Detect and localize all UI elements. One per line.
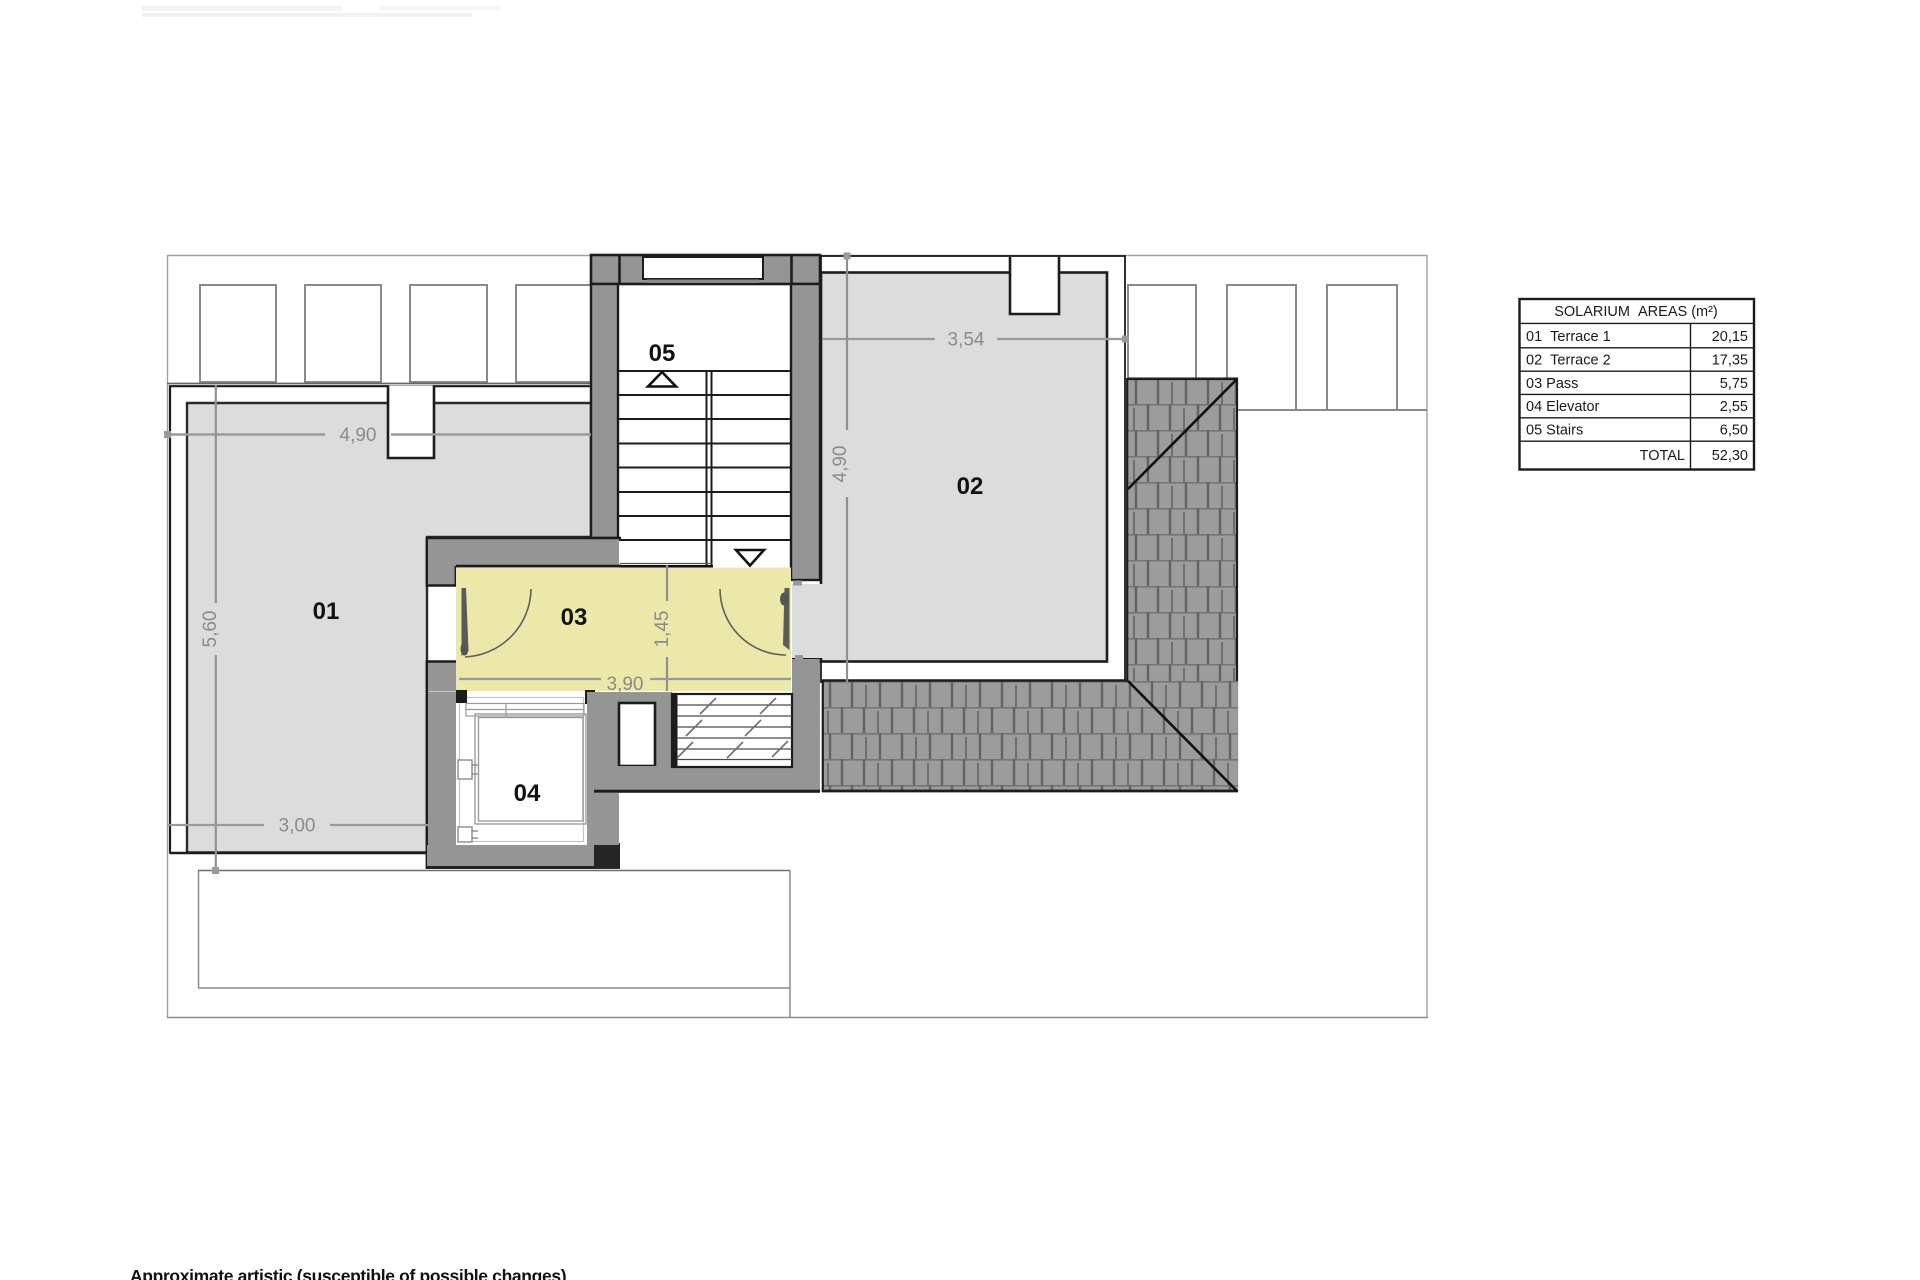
svg-text:3,90: 3,90 bbox=[607, 674, 644, 695]
svg-text:5,75: 5,75 bbox=[1720, 376, 1748, 392]
svg-text:04: 04 bbox=[514, 780, 541, 807]
svg-text:05: 05 bbox=[649, 340, 676, 367]
svg-text:1,45: 1,45 bbox=[652, 611, 673, 648]
svg-text:02: 02 bbox=[957, 473, 984, 500]
svg-text:03: 03 bbox=[561, 604, 588, 631]
svg-text:05 Stairs: 05 Stairs bbox=[1526, 423, 1583, 439]
svg-text:3,00: 3,00 bbox=[279, 816, 316, 837]
svg-text:17,35: 17,35 bbox=[1712, 353, 1748, 369]
svg-text:Approximate artistic (suscepti: Approximate artistic (susceptible of pos… bbox=[130, 1266, 566, 1280]
svg-text:5,60: 5,60 bbox=[200, 611, 221, 648]
svg-text:2,55: 2,55 bbox=[1720, 399, 1748, 415]
svg-text:20,15: 20,15 bbox=[1712, 329, 1748, 345]
svg-text:4,90: 4,90 bbox=[830, 446, 851, 483]
svg-text:01 Terrace 1: 01 Terrace 1 bbox=[1526, 329, 1611, 345]
svg-text:01: 01 bbox=[313, 598, 340, 625]
svg-text:03 Pass: 03 Pass bbox=[1526, 376, 1578, 392]
svg-text:02 Terrace 2: 02 Terrace 2 bbox=[1526, 353, 1611, 369]
svg-text:SOLARIUM AREAS (m²): SOLARIUM AREAS (m²) bbox=[1554, 304, 1718, 320]
svg-text:52,30: 52,30 bbox=[1712, 448, 1748, 464]
svg-text:3,54: 3,54 bbox=[948, 330, 985, 351]
svg-text:04 Elevator: 04 Elevator bbox=[1526, 399, 1600, 415]
svg-text:6,50: 6,50 bbox=[1720, 423, 1748, 439]
svg-text:4,90: 4,90 bbox=[340, 425, 377, 446]
svg-text:TOTAL: TOTAL bbox=[1640, 448, 1685, 464]
